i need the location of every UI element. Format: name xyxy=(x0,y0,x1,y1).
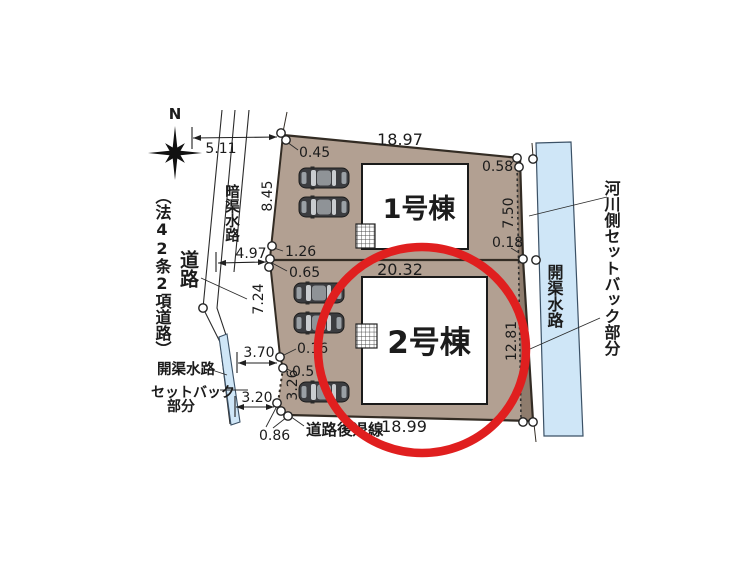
survey-point xyxy=(282,136,290,144)
dim-offset-0-65: 0.65 xyxy=(289,265,320,281)
label-setback-2: 部分 xyxy=(167,398,195,415)
label-culvert: 暗渠水路 xyxy=(223,183,239,243)
survey-point xyxy=(519,255,527,263)
label-road: 道路 xyxy=(177,249,199,289)
dim-offset-0-16: 0.16 xyxy=(297,341,328,357)
site-plan-svg: 1号棟 2号棟 xyxy=(0,0,756,569)
label-open-channel-left: 開渠水路 xyxy=(157,360,215,378)
survey-point xyxy=(268,242,276,250)
dim-corner-top: 0.45 xyxy=(299,145,330,161)
survey-point xyxy=(279,364,287,372)
survey-point xyxy=(513,154,521,162)
survey-point xyxy=(515,163,523,171)
building-2: 2号棟 xyxy=(356,277,487,404)
survey-point xyxy=(529,418,537,426)
car-icon xyxy=(299,167,349,190)
north-label: N xyxy=(169,105,182,123)
label-law-road: （法42条2項道路） xyxy=(153,188,173,357)
survey-point xyxy=(265,263,273,271)
dim-road-width-lower: 3.70 xyxy=(243,345,274,361)
dim-road-width-top: 5.11 xyxy=(205,141,236,157)
car-icon xyxy=(299,196,349,219)
survey-point xyxy=(199,304,207,312)
survey-point xyxy=(273,399,281,407)
survey-point xyxy=(519,418,527,426)
dim-lot2-top-edge: 20.32 xyxy=(377,260,423,279)
dim-offset-1-26: 1.26 xyxy=(285,244,316,260)
site-plan-image: 1号棟 2号棟 xyxy=(0,0,756,569)
label-open-channel-right: 開渠水路 xyxy=(545,264,564,329)
dim-left-upper-edge: 8.45 xyxy=(260,180,276,211)
porch-1 xyxy=(356,224,375,248)
dim-right-upper: 7.50 xyxy=(501,197,517,228)
survey-point xyxy=(529,155,537,163)
porch-2 xyxy=(356,324,377,348)
open-channel-left-strip xyxy=(219,334,240,425)
survey-point xyxy=(532,256,540,264)
building-2-label: 2号棟 xyxy=(387,325,472,361)
building-1-label: 1号棟 xyxy=(383,194,457,225)
north-compass-icon: N xyxy=(148,105,202,180)
dim-road-width-mid: 4.97 xyxy=(235,246,266,262)
survey-point xyxy=(284,412,292,420)
dim-offset-0-86: 0.86 xyxy=(259,428,290,444)
dim-bottom-edge: 18.99 xyxy=(381,417,427,436)
dim-corner-top-right: 0.58 xyxy=(482,159,513,175)
dim-top-edge: 18.97 xyxy=(377,130,423,149)
dim-left-lower-edge: 7.24 xyxy=(251,283,267,314)
label-river-setback: 河川側セットバック部分 xyxy=(602,179,622,357)
dim-road-width-bottom: 3.20 xyxy=(241,390,272,406)
building-1: 1号棟 xyxy=(356,164,468,249)
survey-point xyxy=(266,255,274,263)
survey-point xyxy=(276,353,284,361)
dim-edge-3-26: 3.26 xyxy=(285,369,301,400)
dim-right-offset: 0.18 xyxy=(492,235,523,251)
dim-right-lower: 12.81 xyxy=(504,321,520,361)
